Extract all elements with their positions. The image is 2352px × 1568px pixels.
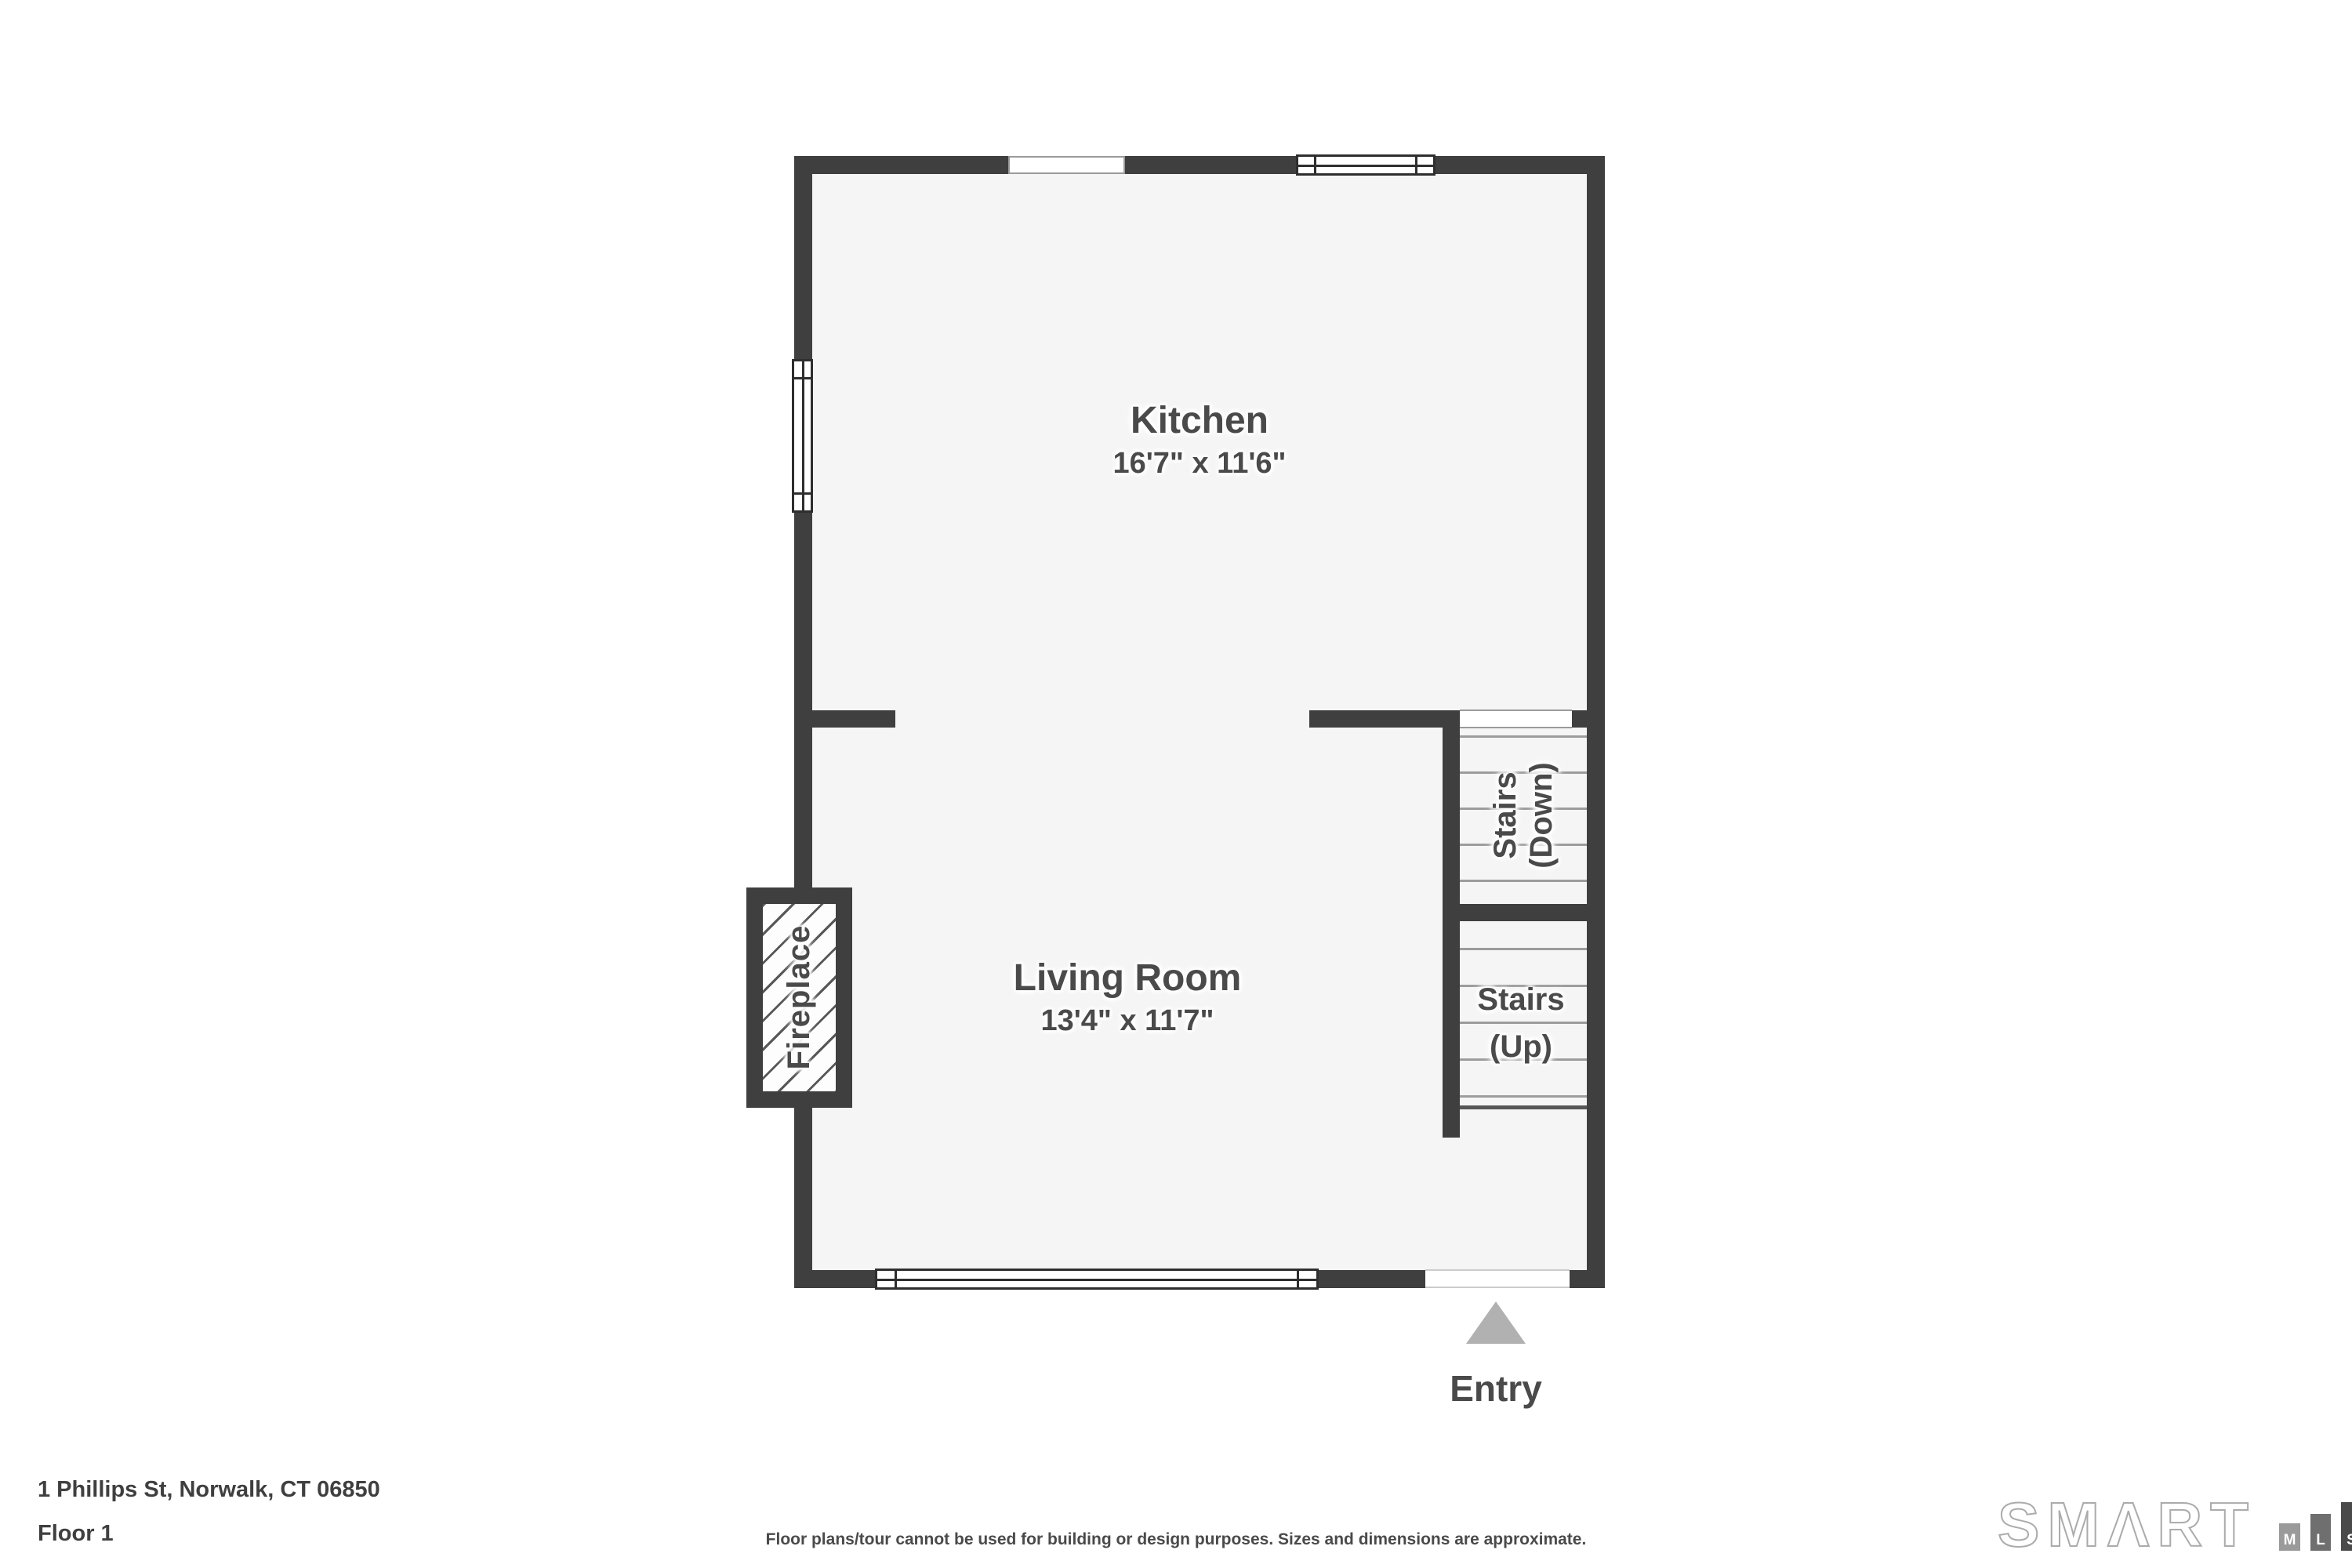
room-name: Kitchen xyxy=(1043,398,1356,444)
window-top-right xyxy=(1296,154,1436,176)
window-end-cap xyxy=(794,377,811,379)
window-end-cap xyxy=(895,1271,897,1287)
floor-plan-canvas: Fireplace Kitchen 16'7" x 11'6" Living R… xyxy=(0,0,2352,1568)
wall-stairwell-left xyxy=(1443,728,1460,1138)
wall-left xyxy=(794,156,812,1288)
window-end-cap xyxy=(1415,157,1417,173)
wall-divider-right xyxy=(1309,710,1460,728)
stairs-up-line2: (Up) xyxy=(1419,1023,1623,1070)
address-text: 1 Phillips St, Norwalk, CT 06850 xyxy=(38,1477,380,1503)
kitchen-label-group: Kitchen 16'7" x 11'6" xyxy=(1043,398,1356,483)
wall-stairs-top-piece xyxy=(1572,710,1587,728)
fireplace-label: Fireplace xyxy=(780,880,818,1115)
living-room-label-group: Living Room 13'4" x 11'7" xyxy=(971,956,1284,1040)
wall-right xyxy=(1587,156,1605,1288)
mls-bar-m: M xyxy=(2279,1523,2300,1551)
mls-bar-l: L xyxy=(2310,1514,2331,1551)
window-sash-line xyxy=(1298,165,1433,167)
window-bottom-wall xyxy=(875,1269,1319,1290)
smart-wordmark: SMΛRT xyxy=(1998,1499,2256,1551)
mls-bars: M L S xyxy=(2269,1502,2352,1551)
room-dimensions: 13'4" x 11'7" xyxy=(971,1001,1284,1040)
mls-bar-s: S xyxy=(2341,1502,2352,1551)
window-left-wall xyxy=(792,359,813,513)
wall-top xyxy=(794,156,1605,174)
wall-divider-left-stub xyxy=(812,710,895,728)
entry-arrow-icon xyxy=(1466,1301,1526,1344)
stairs-up-label: Stairs (Up) xyxy=(1419,976,1623,1070)
entry-door-opening xyxy=(1425,1269,1570,1288)
window-end-cap xyxy=(1314,157,1316,173)
room-name: Living Room xyxy=(971,956,1284,1001)
stairs-up-line1: Stairs xyxy=(1419,976,1623,1023)
stairs-down-line2: (Down) xyxy=(1523,713,1559,917)
window-top-left xyxy=(1008,156,1125,174)
fireplace-label-text: Fireplace xyxy=(782,925,816,1070)
smartmls-logo: SMΛRT M L S xyxy=(1998,1499,2352,1551)
window-end-cap xyxy=(1297,1271,1299,1287)
room-dimensions: 16'7" x 11'6" xyxy=(1043,444,1356,483)
window-end-cap xyxy=(794,492,811,495)
window-sash-line xyxy=(802,361,804,510)
entry-label-text: Entry xyxy=(1450,1368,1542,1409)
entry-label: Entry xyxy=(1378,1367,1613,1410)
stairs-down-label: Stairs (Down) xyxy=(1487,713,1559,917)
stairs-down-line1: Stairs xyxy=(1487,713,1523,917)
window-sash-line xyxy=(877,1279,1316,1281)
stairs-up-landing-edge xyxy=(1460,1105,1587,1109)
